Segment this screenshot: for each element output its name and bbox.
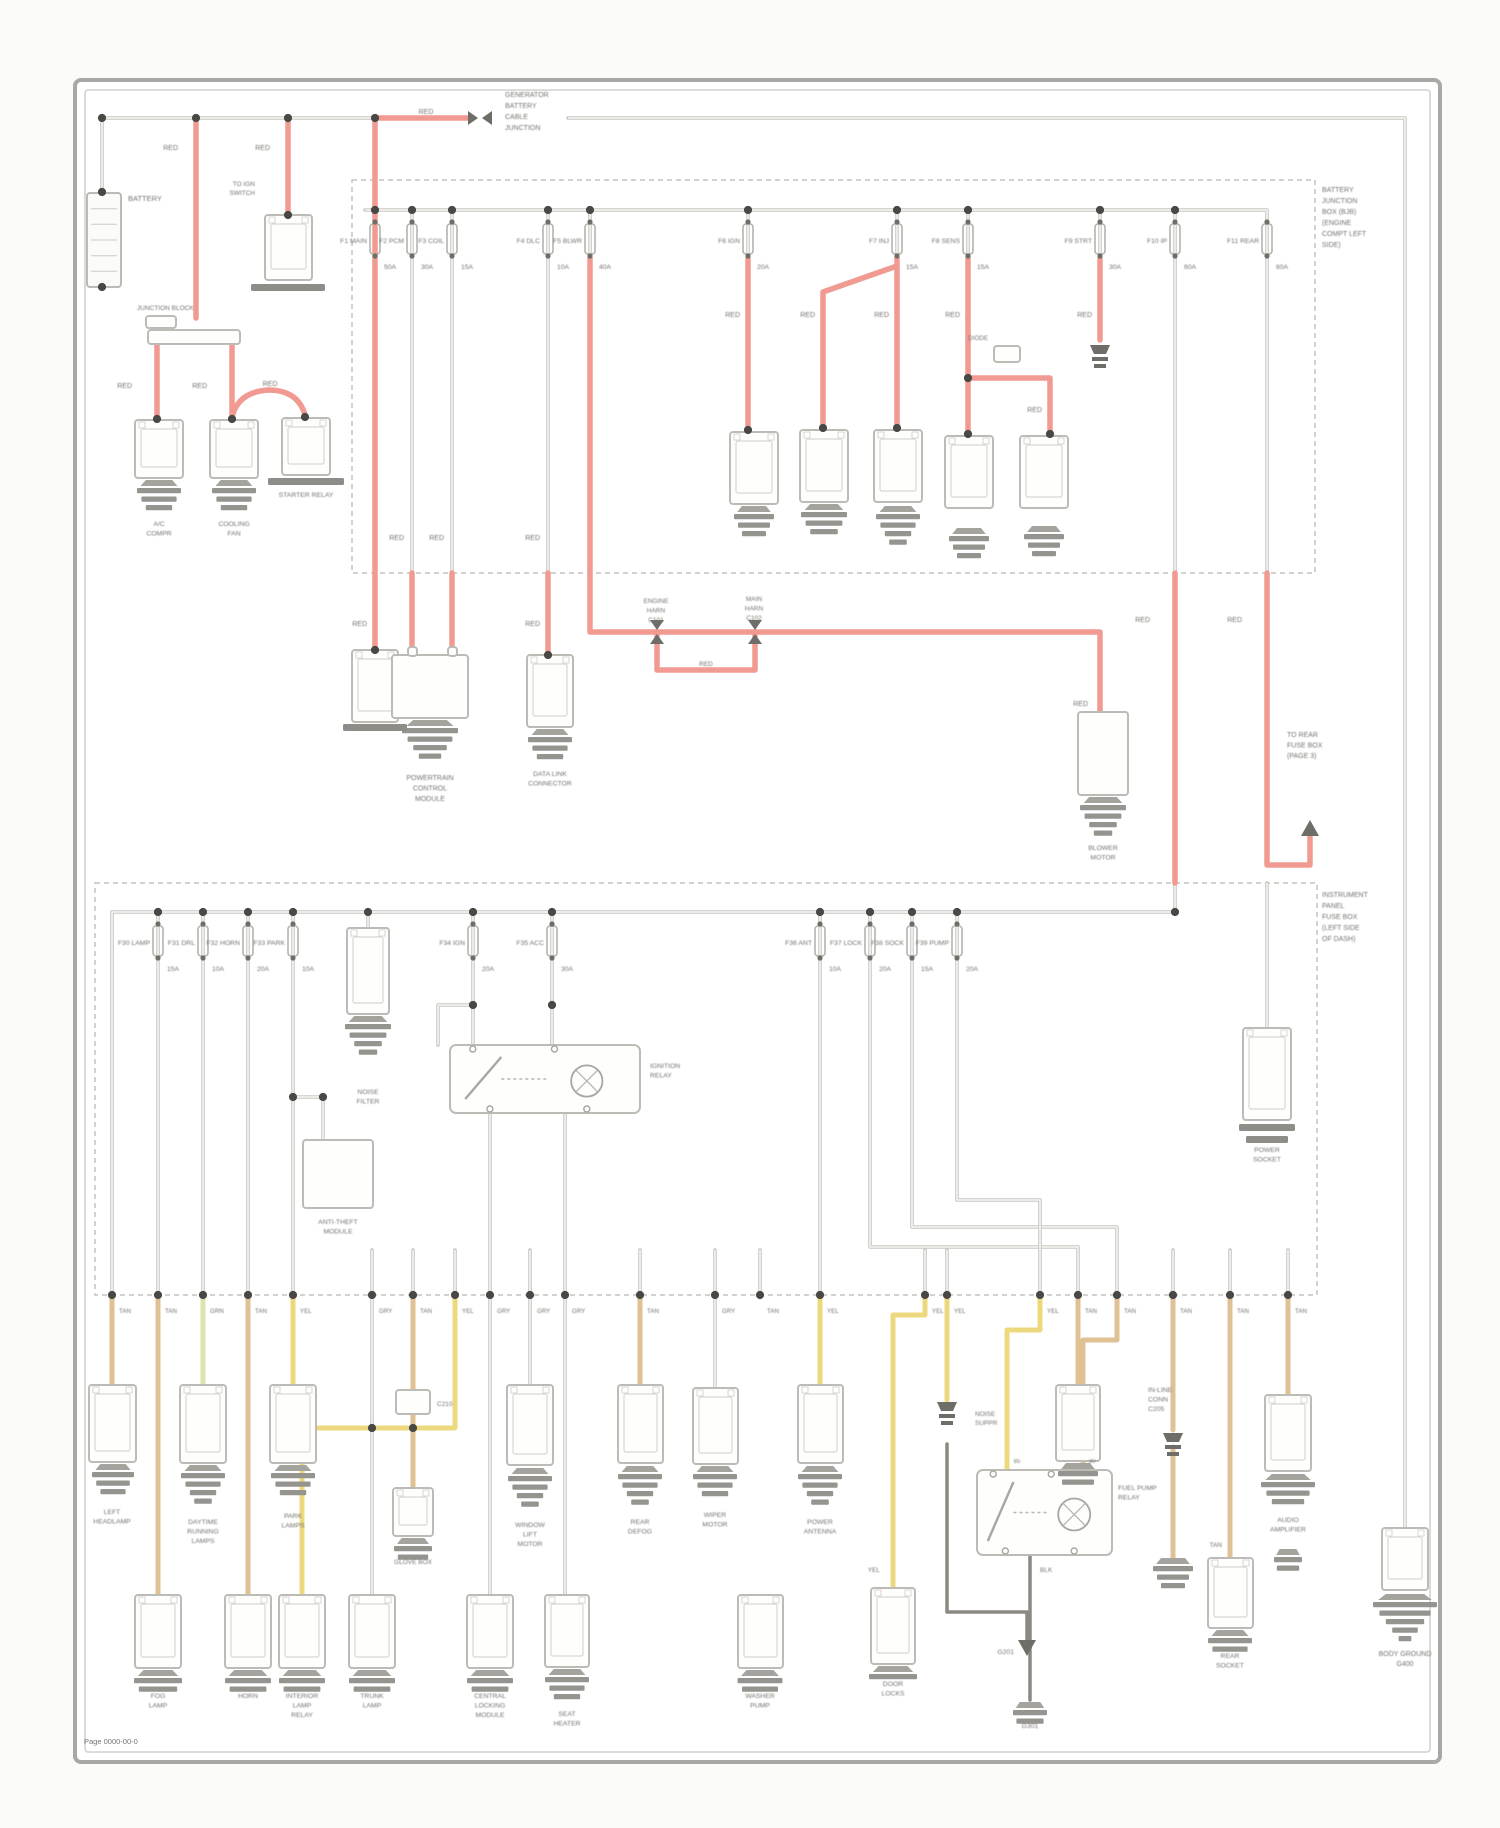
junction-dot — [228, 415, 236, 423]
diagram-label: 20A — [482, 966, 495, 973]
diagram-label: 85 — [1014, 1459, 1021, 1465]
junction-dot — [586, 206, 594, 214]
ground-cap — [229, 1670, 268, 1676]
ground-cap — [873, 1666, 913, 1672]
component-box — [303, 1140, 373, 1208]
diagram-label: RED — [352, 621, 367, 628]
ground-cap — [406, 720, 453, 726]
fuse-terminal — [449, 219, 454, 224]
ground-cap — [1156, 1558, 1190, 1564]
diagram-label: GRY — [722, 1308, 735, 1315]
ground-bar — [1277, 1566, 1299, 1571]
component-small — [448, 647, 457, 656]
ground-bar — [1266, 1491, 1309, 1496]
fuse-terminal — [290, 921, 295, 926]
diagram-label: 10A — [557, 264, 570, 271]
junction-dot — [561, 1291, 569, 1299]
diagram-label: RED — [389, 535, 404, 542]
fuse-terminal — [1172, 253, 1177, 258]
junction-dot — [409, 1424, 417, 1432]
diagram-label: CENTRALLOCKINGMODULE — [474, 1693, 506, 1719]
ground-bar — [801, 512, 847, 517]
ground-bar — [190, 1490, 216, 1495]
ground-cap — [1265, 1474, 1310, 1480]
diagram-label: 15A — [167, 966, 180, 973]
ground-bar — [1379, 1611, 1430, 1616]
fuse-terminal — [545, 219, 550, 224]
ground-bar — [472, 1687, 509, 1692]
diagram-label: 40A — [599, 264, 612, 271]
diagram-label: TAN — [119, 1308, 131, 1315]
fuse-terminal — [867, 955, 872, 960]
junction-dot — [1226, 1291, 1234, 1299]
ground-bar — [622, 1483, 657, 1488]
ground-cap — [802, 1466, 839, 1472]
diagram-label: RED — [1227, 617, 1242, 624]
ground-bar — [1153, 1566, 1193, 1571]
ground-bar — [810, 529, 838, 534]
diagram-label: YEL — [1047, 1308, 1059, 1315]
junction-dot — [98, 283, 106, 291]
diagram-label: 60A — [1184, 264, 1197, 271]
diagram-label: G301 — [1022, 1723, 1039, 1730]
power-distribution-diagram: F1 MAIN50AF2 PCM30AF3 COIL15AF4 DLC10AF5… — [0, 0, 1500, 1828]
diagram-label: RED — [725, 312, 740, 319]
diagram-label: TAN — [165, 1308, 177, 1315]
ground-cap — [397, 1538, 429, 1544]
diagram-label: 30 — [1089, 1459, 1096, 1465]
diagram-label: TAN — [1237, 1308, 1249, 1315]
diagram-label: F35 ACC — [516, 940, 544, 947]
diagram-label: TAN — [1124, 1308, 1136, 1315]
diagram-label: C210 — [437, 1401, 453, 1408]
diagram-label: TAN — [1295, 1308, 1307, 1315]
diagram-label: 20A — [757, 264, 770, 271]
ground-bar — [1058, 1471, 1098, 1476]
ground-bar — [137, 488, 181, 493]
fuse-terminal — [894, 253, 899, 258]
junction-dot — [816, 1291, 824, 1299]
ground-cap — [1276, 1549, 1300, 1555]
diagram-label: F2 PCM — [379, 238, 404, 245]
ground-bar — [1386, 1619, 1424, 1624]
junction-dot — [409, 1291, 417, 1299]
ground-bar — [512, 1485, 547, 1490]
diagram-label: F36 ANT — [785, 940, 812, 947]
component-small — [146, 316, 176, 328]
diagram-label: RED — [192, 383, 207, 390]
ground-cap — [1016, 1702, 1045, 1708]
junction-dot — [1046, 430, 1054, 438]
fuse-terminal — [1172, 219, 1177, 224]
relay-terminal — [470, 1046, 476, 1052]
ground-bar — [1261, 1482, 1315, 1487]
junction-dot — [469, 908, 477, 916]
diagram-label: F8 SENS — [932, 238, 961, 245]
ground-bar — [802, 1483, 837, 1488]
junction-dot — [244, 1291, 252, 1299]
ground-bar — [194, 1499, 212, 1504]
ground-bar — [1024, 534, 1064, 539]
diagram-label: F39 PUMP — [916, 940, 950, 947]
ground-bar — [1080, 805, 1126, 810]
ground-bar — [345, 1024, 391, 1029]
ground-bar — [100, 1489, 125, 1494]
junction-dot — [953, 908, 961, 916]
diagram-label: G201 — [997, 1649, 1014, 1656]
fuse-terminal — [470, 921, 475, 926]
fuse-terminal — [909, 921, 914, 926]
ground-bar — [1013, 1710, 1047, 1715]
junction-dot — [289, 908, 297, 916]
diagram-label: 20A — [257, 966, 270, 973]
fuse-terminal — [817, 921, 822, 926]
ground-bar — [349, 1678, 395, 1683]
ground-bar — [1094, 831, 1112, 836]
diagram-label: GRY — [379, 1308, 392, 1315]
ground-cap — [952, 528, 986, 534]
diagram-label: F6 IGN — [718, 238, 740, 245]
terminal-bar — [1246, 1136, 1288, 1143]
ground-cap — [512, 1468, 549, 1474]
relay-terminal — [990, 1471, 996, 1477]
junction-dot — [921, 1291, 929, 1299]
ground-bar — [517, 1493, 543, 1498]
junction-dot — [154, 1291, 162, 1299]
component-cart — [1243, 1028, 1291, 1120]
diagram-label: DAYTIMERUNNINGLAMPS — [187, 1519, 219, 1545]
diagram-label: RED — [263, 381, 278, 388]
ground-bar — [537, 754, 563, 759]
ground-bar — [280, 1490, 306, 1495]
ground-cap — [737, 506, 771, 512]
fuse-terminal — [587, 219, 592, 224]
diagram-label: 15A — [921, 966, 934, 973]
junction-dot — [368, 1424, 376, 1432]
diagram-label: F33 PARK — [253, 940, 285, 947]
ground-bar — [528, 737, 572, 742]
page-border-outer — [75, 80, 1440, 1762]
ground-bar — [1032, 551, 1056, 556]
diagram-label: RED — [800, 312, 815, 319]
diagram-label: 60A — [1276, 264, 1289, 271]
ground-bar — [953, 545, 985, 550]
junction-dot — [364, 908, 372, 916]
fuse-terminal — [545, 253, 550, 258]
ground-bar — [1028, 543, 1060, 548]
ground-bar — [738, 1678, 783, 1683]
diagram-label: F10 IP — [1147, 238, 1167, 245]
diagram-label: RED — [117, 383, 132, 390]
ground-bar — [702, 1491, 728, 1496]
fuse-terminal — [290, 955, 295, 960]
ground-bar — [742, 531, 766, 536]
ground-bar — [618, 1474, 662, 1479]
diagram-label: RED — [419, 109, 434, 116]
ground-cap — [1378, 1594, 1432, 1600]
junction-dot — [544, 206, 552, 214]
diagram-label: F38 SOCK — [871, 940, 904, 947]
junction-dot — [1074, 1291, 1082, 1299]
ground-bar — [96, 1481, 130, 1486]
fuse-terminal — [745, 253, 750, 258]
fuse-terminal — [1264, 219, 1269, 224]
ground-bar — [1392, 1628, 1418, 1633]
diagram-label: RED — [1027, 407, 1042, 414]
ground-bar — [738, 523, 770, 528]
ground-bar — [521, 1502, 539, 1507]
diagram-label: YEL — [954, 1308, 966, 1315]
junction-dot — [526, 1291, 534, 1299]
junction-dot — [1284, 1291, 1292, 1299]
ground-bar — [693, 1474, 737, 1479]
diagram-label: F5 BLWR — [553, 238, 582, 245]
page-border — [75, 80, 1440, 1762]
component-small — [396, 1390, 430, 1414]
ground-bar — [549, 1686, 584, 1691]
ground-cap — [216, 480, 253, 486]
fuse-terminal — [470, 955, 475, 960]
ground-bar — [885, 531, 911, 536]
terminal-bar — [1239, 1124, 1295, 1131]
ground-cap — [138, 1670, 178, 1676]
connector-stack-bar — [941, 1421, 953, 1425]
fuse-terminal — [745, 219, 750, 224]
diagram-label: TAN — [1180, 1308, 1192, 1315]
junction-dot — [964, 430, 972, 438]
ground-bar — [1212, 1647, 1247, 1652]
diagram-label: STARTER RELAY — [279, 492, 334, 499]
diagram-label: TAN — [647, 1308, 659, 1315]
ground-cap — [697, 1466, 734, 1472]
diagram-label: F4 DLC — [517, 238, 541, 245]
ground-bar — [876, 514, 920, 519]
ground-bar — [545, 1677, 589, 1682]
diagram-label: 20A — [966, 966, 979, 973]
diagram-label: RED — [1073, 701, 1088, 708]
diagram-label: RED — [255, 145, 270, 152]
diagram-label: BATTERY — [128, 194, 162, 203]
connector-stack-bar — [1167, 1452, 1179, 1456]
diagram-label: YEL — [868, 1567, 881, 1574]
junction-dot — [964, 206, 972, 214]
junction-dot — [866, 908, 874, 916]
ground-cap — [622, 1466, 659, 1472]
fuse-terminal — [245, 955, 250, 960]
connector-stack-bar — [1094, 364, 1106, 368]
diagram-label: TAN — [1085, 1308, 1097, 1315]
ground-bar — [354, 1687, 391, 1692]
ground-bar — [185, 1482, 220, 1487]
ground-bar — [419, 754, 441, 759]
diagram-label: 15A — [977, 264, 990, 271]
ground-bar — [359, 1050, 377, 1055]
junction-dot — [451, 1291, 459, 1299]
diagram-label: 20A — [879, 966, 892, 973]
junction-dot — [368, 1291, 376, 1299]
diagram-label: TAN — [420, 1308, 432, 1315]
junction-dot — [98, 188, 106, 196]
ground-cap — [549, 1669, 586, 1675]
fuse-terminal — [965, 219, 970, 224]
diagram-label: BLK — [1040, 1567, 1053, 1574]
ground-bar — [402, 728, 458, 733]
junction-dot — [1171, 908, 1179, 916]
junction-dot — [108, 1291, 116, 1299]
ground-bar — [1085, 814, 1122, 819]
diagram-label: TAN — [1209, 1542, 1222, 1549]
fuse-terminal — [155, 955, 160, 960]
fuse-terminal — [1097, 219, 1102, 224]
terminal-bar — [343, 724, 407, 731]
ground-cap — [880, 506, 917, 512]
page-footer: Page 0000-00-0 — [84, 1737, 138, 1746]
ground-bar — [225, 1678, 271, 1683]
junction-dot — [744, 426, 752, 434]
ground-bar — [869, 1674, 917, 1679]
junction-dot — [636, 1291, 644, 1299]
diagram-label: 15A — [461, 264, 474, 271]
diagram-label: GLOVE BOX — [394, 1559, 433, 1566]
diagram-label: HORN — [238, 1693, 258, 1700]
component-small — [408, 647, 417, 656]
diagram-label: TAN — [255, 1308, 267, 1315]
junction-dot — [289, 1291, 297, 1299]
component-small — [994, 346, 1020, 362]
junction-dot — [964, 374, 972, 382]
diagram-label: RED — [525, 535, 540, 542]
ground-bar — [350, 1033, 387, 1038]
junction-dot — [893, 206, 901, 214]
fuse-terminal — [449, 253, 454, 258]
ground-bar — [216, 497, 251, 502]
fuse-terminal — [200, 921, 205, 926]
ground-cap — [532, 729, 569, 735]
junction-dot — [819, 424, 827, 432]
ground-bar — [1062, 1480, 1094, 1485]
ground-bar — [394, 1546, 432, 1551]
fuse-terminal — [549, 955, 554, 960]
ground-bar — [697, 1483, 732, 1488]
fuse-terminal — [587, 253, 592, 258]
fuse-terminal — [155, 921, 160, 926]
diagram-label: F7 INJ — [869, 238, 889, 245]
ground-bar — [139, 1687, 177, 1692]
ground-bar — [275, 1482, 310, 1487]
junction-dot — [486, 1291, 494, 1299]
ground-bar — [1089, 822, 1117, 827]
ground-bar — [880, 523, 915, 528]
junction-dot — [469, 1001, 477, 1009]
relay-terminal — [552, 1046, 558, 1052]
fuse-terminal — [549, 921, 554, 926]
diagram-label: 10A — [829, 966, 842, 973]
junction-dot — [548, 1001, 556, 1009]
terminal-bar — [251, 284, 325, 291]
junction-dot — [816, 908, 824, 916]
diagram-label: 50A — [384, 264, 397, 271]
diagram-label: 10A — [212, 966, 225, 973]
fuse-terminal — [894, 219, 899, 224]
relay-terminal — [1048, 1471, 1054, 1477]
junction-dot — [1036, 1291, 1044, 1299]
ground-bar — [212, 488, 256, 493]
ground-cap — [1027, 526, 1061, 532]
ground-cap — [349, 1016, 388, 1022]
junction-dot — [371, 646, 379, 654]
ground-bar — [1272, 1499, 1304, 1504]
ground-bar — [742, 1687, 778, 1692]
ground-bar — [554, 1694, 580, 1699]
ground-cap — [471, 1670, 510, 1676]
diagram-label: TAN — [767, 1308, 779, 1315]
ground-bar — [1274, 1557, 1302, 1562]
diagram-label: YEL — [932, 1308, 944, 1315]
ground-bar — [284, 1687, 321, 1692]
ground-bar — [181, 1473, 225, 1478]
diagram-label: 30A — [421, 264, 434, 271]
diagram-label: RED — [1135, 617, 1150, 624]
ground-bar — [889, 540, 907, 545]
junction-dot — [153, 415, 161, 423]
junction-dot — [1096, 206, 1104, 214]
diagram-label: RED — [874, 312, 889, 319]
junction-dot — [199, 1291, 207, 1299]
component-box — [1078, 712, 1128, 795]
junction-dot — [1171, 206, 1179, 214]
fuse-terminal — [965, 253, 970, 258]
ground-bar — [408, 737, 453, 742]
diagram-label: RED — [699, 661, 713, 668]
ground-bar — [413, 745, 447, 750]
junction-dot — [289, 1093, 297, 1101]
junction-dot — [371, 114, 379, 122]
ground-bar — [811, 1500, 829, 1505]
junction-dot — [319, 1093, 327, 1101]
diagram-label: F3 COIL — [418, 238, 444, 245]
ground-bar — [1373, 1602, 1437, 1607]
diagram-label: YEL — [827, 1308, 839, 1315]
junction-dot — [1169, 1291, 1177, 1299]
junction-dot — [744, 206, 752, 214]
ground-bar — [957, 553, 981, 558]
ground-bar — [1399, 1636, 1412, 1641]
connector-stack-bar — [939, 1414, 955, 1418]
ground-bar — [146, 505, 172, 510]
ground-bar — [271, 1473, 315, 1478]
ground-bar — [807, 1491, 833, 1496]
ground-bar — [631, 1500, 649, 1505]
fuse-terminal — [372, 253, 377, 258]
junction-dot — [544, 651, 552, 659]
diagram-label: 30A — [561, 966, 574, 973]
diagram-label: GRN — [210, 1308, 224, 1315]
relay-terminal — [1002, 1548, 1008, 1554]
diagram-label: RED — [163, 145, 178, 152]
diagram-label: RED — [525, 621, 540, 628]
component-small — [148, 330, 240, 344]
diagram-label: MAINHARNC102 — [745, 596, 764, 622]
diagram-label: F1 MAIN — [340, 238, 367, 245]
ground-cap — [95, 1464, 130, 1470]
junction-dot — [548, 908, 556, 916]
relay-terminal — [487, 1106, 493, 1112]
diagram-label: F11 REAR — [1227, 238, 1259, 245]
junction-dot — [908, 908, 916, 916]
ground-bar — [949, 536, 989, 541]
junction-dot — [284, 211, 292, 219]
diagram-label: YEL — [300, 1308, 312, 1315]
